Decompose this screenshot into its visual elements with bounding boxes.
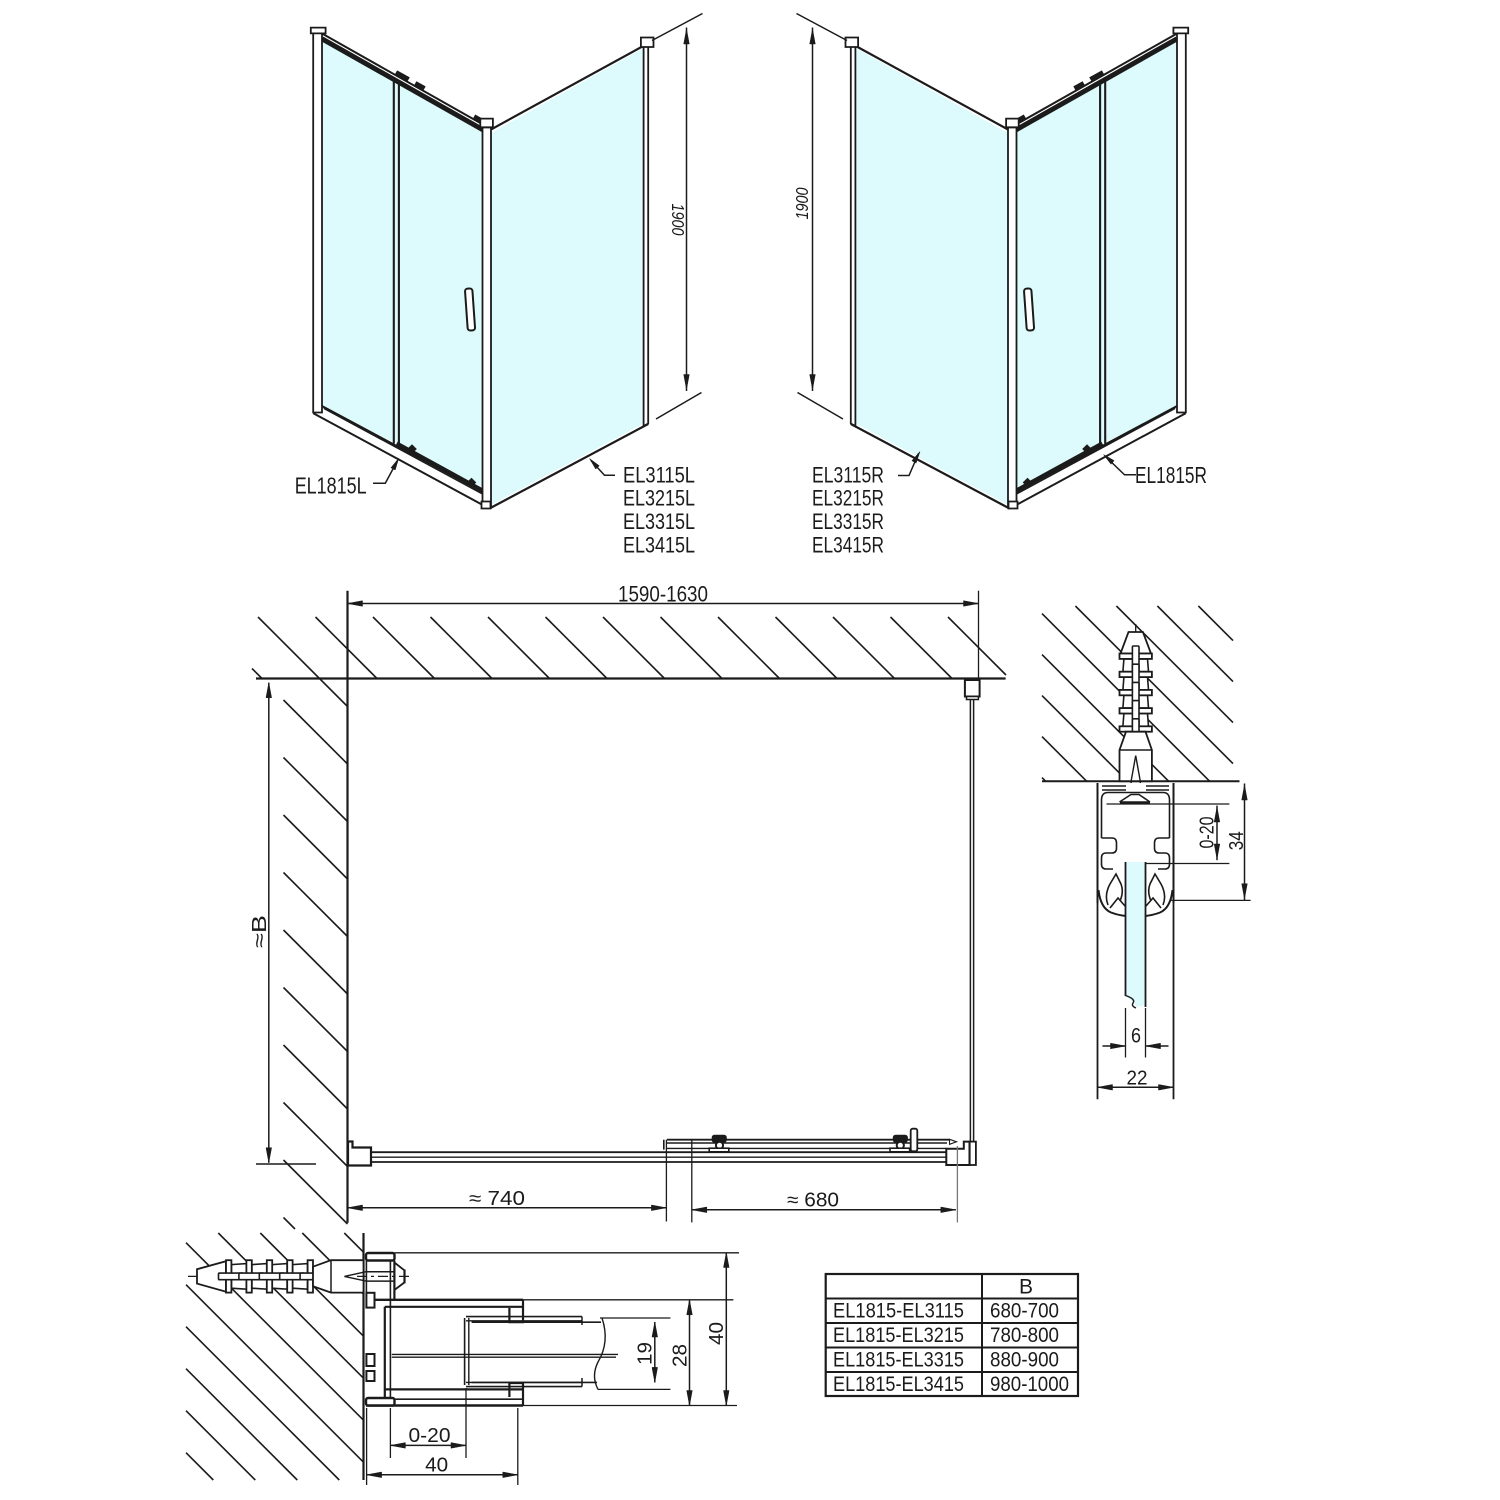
svg-text:40: 40 (706, 1322, 728, 1345)
svg-text:≈ 740: ≈ 740 (469, 1188, 525, 1210)
svg-text:880-900: 880-900 (990, 1349, 1059, 1372)
svg-text:EL3215R: EL3215R (812, 486, 884, 511)
svg-text:0-20: 0-20 (1197, 817, 1219, 849)
svg-text:B: B (1019, 1276, 1033, 1299)
svg-text:≈ 680: ≈ 680 (787, 1189, 839, 1211)
svg-text:EL3415R: EL3415R (812, 533, 884, 558)
svg-text:0-20: 0-20 (409, 1425, 451, 1447)
svg-text:1590-1630: 1590-1630 (618, 581, 708, 606)
svg-text:EL3415L: EL3415L (623, 533, 695, 558)
svg-text:≈B: ≈B (249, 915, 271, 948)
svg-text:EL3215L: EL3215L (623, 486, 695, 511)
svg-text:EL3315L: EL3315L (623, 509, 695, 534)
svg-text:EL3315R: EL3315R (812, 509, 884, 534)
svg-text:EL1815-EL3415: EL1815-EL3415 (833, 1373, 964, 1396)
svg-text:6: 6 (1131, 1025, 1141, 1048)
svg-text:980-1000: 980-1000 (990, 1373, 1069, 1396)
svg-text:EL3115R: EL3115R (812, 462, 884, 487)
svg-text:EL1815-EL3115: EL1815-EL3115 (833, 1300, 964, 1323)
svg-text:EL1815-EL3315: EL1815-EL3315 (833, 1349, 964, 1372)
svg-text:680-700: 680-700 (990, 1300, 1059, 1323)
svg-text:28: 28 (670, 1344, 692, 1367)
svg-text:1900: 1900 (668, 204, 688, 236)
svg-text:EL1815-EL3215: EL1815-EL3215 (833, 1324, 964, 1347)
svg-text:40: 40 (425, 1454, 448, 1476)
svg-text:34: 34 (1226, 831, 1248, 850)
svg-text:1900: 1900 (792, 187, 812, 219)
svg-text:EL3115L: EL3115L (623, 462, 695, 487)
svg-text:19: 19 (635, 1342, 657, 1365)
svg-text:EL1815L: EL1815L (295, 472, 367, 498)
svg-text:EL1815R: EL1815R (1135, 462, 1207, 488)
svg-text:780-800: 780-800 (990, 1324, 1059, 1347)
svg-text:22: 22 (1127, 1066, 1148, 1089)
